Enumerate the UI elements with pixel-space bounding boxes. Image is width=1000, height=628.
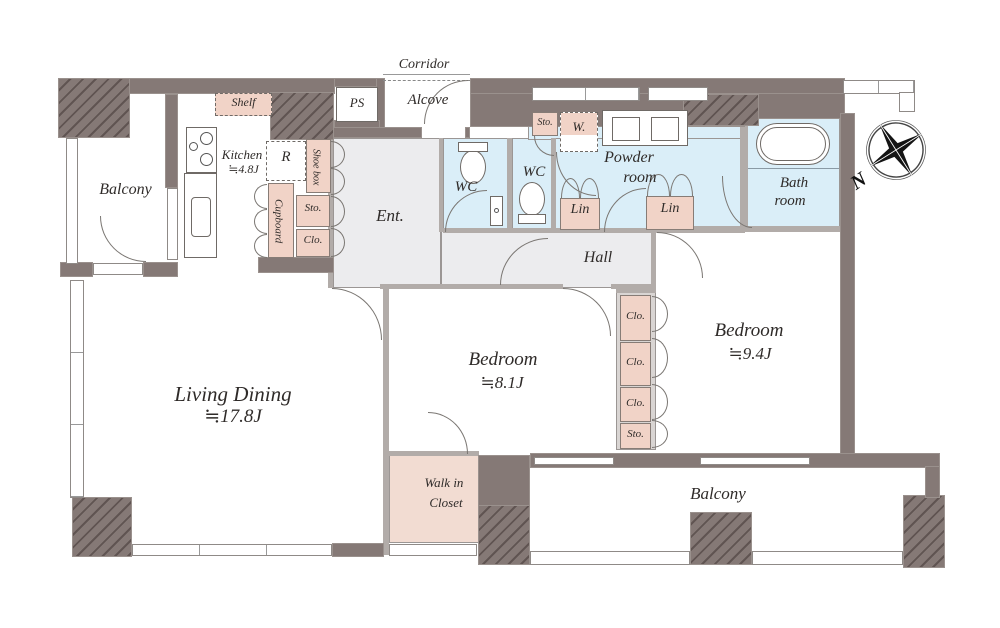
corridor-boundary (383, 74, 470, 81)
wc-label: WC (516, 165, 552, 181)
balcony-label: Balcony (668, 485, 768, 503)
bedroom2-door-arc (657, 232, 703, 278)
bedroom2-size-label: ≒9.4J (700, 345, 800, 363)
toilet-tank (518, 214, 546, 224)
bedroom1-door-arc (563, 288, 611, 336)
wall-segment (439, 138, 443, 232)
wic-door-arc (428, 412, 468, 454)
entrance-label: Ent. (360, 207, 420, 225)
clo-label: Clo. (296, 235, 330, 247)
wall-segment (925, 466, 940, 498)
alcove-label: Alcove (393, 93, 463, 109)
wc-label: WC (448, 180, 484, 196)
powder-room-label: Powder (586, 150, 672, 167)
corridor-label: Corridor (386, 58, 462, 73)
kitchen-sink (191, 197, 211, 237)
wall-segment (143, 262, 178, 277)
window (700, 457, 810, 465)
ps-label: PS (339, 96, 375, 110)
pillar (72, 497, 132, 557)
window (66, 138, 78, 264)
wall-segment (380, 284, 443, 289)
window (648, 87, 708, 101)
bathtub (756, 123, 830, 165)
cupboard-label: Cupboard (272, 187, 284, 255)
shoe-box-label: Shoe box (310, 142, 321, 192)
wall-segment (60, 262, 93, 277)
window (70, 280, 84, 498)
hall-label: Hall (568, 250, 628, 267)
sto-label: Sto. (296, 203, 330, 215)
washer-label: W. (562, 120, 596, 134)
stove-burner (189, 142, 198, 151)
wall-segment (651, 230, 656, 290)
wall-segment (165, 94, 178, 188)
walkin-closet-label2: Closet (406, 496, 486, 510)
bath-divider (748, 168, 839, 169)
window (534, 457, 614, 465)
washbasin (651, 117, 679, 141)
bath-room-label2: room (754, 194, 826, 210)
sto-label: Sto. (620, 429, 651, 441)
living-dining-size-label: ≒17.8J (168, 407, 298, 427)
linen-label: Lin (560, 203, 600, 218)
panel-dot (494, 208, 499, 213)
clo-label: Clo. (620, 398, 651, 410)
pillar (690, 512, 752, 565)
window (532, 87, 640, 101)
walkin-closet-label: Walk in (404, 476, 484, 490)
bath-room-label: Bath (758, 176, 830, 192)
wall-segment (616, 287, 656, 293)
compass-icon: N (848, 106, 944, 202)
window (132, 544, 332, 556)
window (389, 544, 477, 556)
wall-segment (270, 92, 334, 140)
wall-segment (465, 127, 470, 138)
folding-door-arc (652, 296, 668, 332)
wall-segment (507, 138, 512, 232)
kitchen-label: Kitchen (212, 148, 272, 162)
balcony-label: Balcony (88, 182, 163, 199)
toilet (519, 182, 545, 216)
stove-burner (200, 132, 213, 145)
folding-door-arc (254, 184, 267, 209)
washbasin (612, 117, 640, 141)
clo-label: Clo. (620, 357, 651, 369)
folding-door-arc (652, 384, 668, 420)
wall-segment (333, 127, 422, 138)
wall-segment (383, 287, 389, 555)
compass-north-label: N (848, 167, 872, 195)
shelf-label: Shelf (216, 96, 271, 109)
pillar (478, 505, 530, 565)
pillar (58, 78, 130, 138)
balcony-door-arc (100, 216, 146, 262)
window (93, 263, 143, 275)
wall-segment (258, 257, 334, 273)
balcony-rail (752, 551, 903, 565)
powder-room-label2: room (600, 170, 680, 187)
folding-door-arc (652, 420, 668, 448)
clo-label: Clo. (620, 311, 651, 323)
wall-segment (332, 543, 384, 557)
balcony-rail (530, 551, 690, 565)
folding-door-arc (652, 338, 668, 378)
folding-door-arc (254, 234, 267, 258)
bedroom1-label: Bedroom (448, 350, 558, 370)
window (167, 188, 178, 260)
pillar (903, 495, 945, 568)
bedroom1-size-label: ≒8.1J (452, 374, 552, 392)
floor-plan: Corridor Alcove PS Shelf Kitchen ≒4.8J R… (0, 0, 1000, 628)
fridge-label: R (266, 150, 306, 166)
living-door-arc (332, 288, 382, 340)
living-dining-label: Living Dining (160, 383, 306, 405)
kitchen-size-label: ≒4.8J (216, 163, 271, 176)
sto-label: Sto. (532, 118, 558, 129)
toilet-tank (458, 142, 488, 152)
bedroom2-label: Bedroom (694, 321, 804, 341)
linen-label: Lin (646, 202, 694, 217)
folding-door-arc (254, 209, 267, 234)
wall-segment (745, 93, 845, 119)
